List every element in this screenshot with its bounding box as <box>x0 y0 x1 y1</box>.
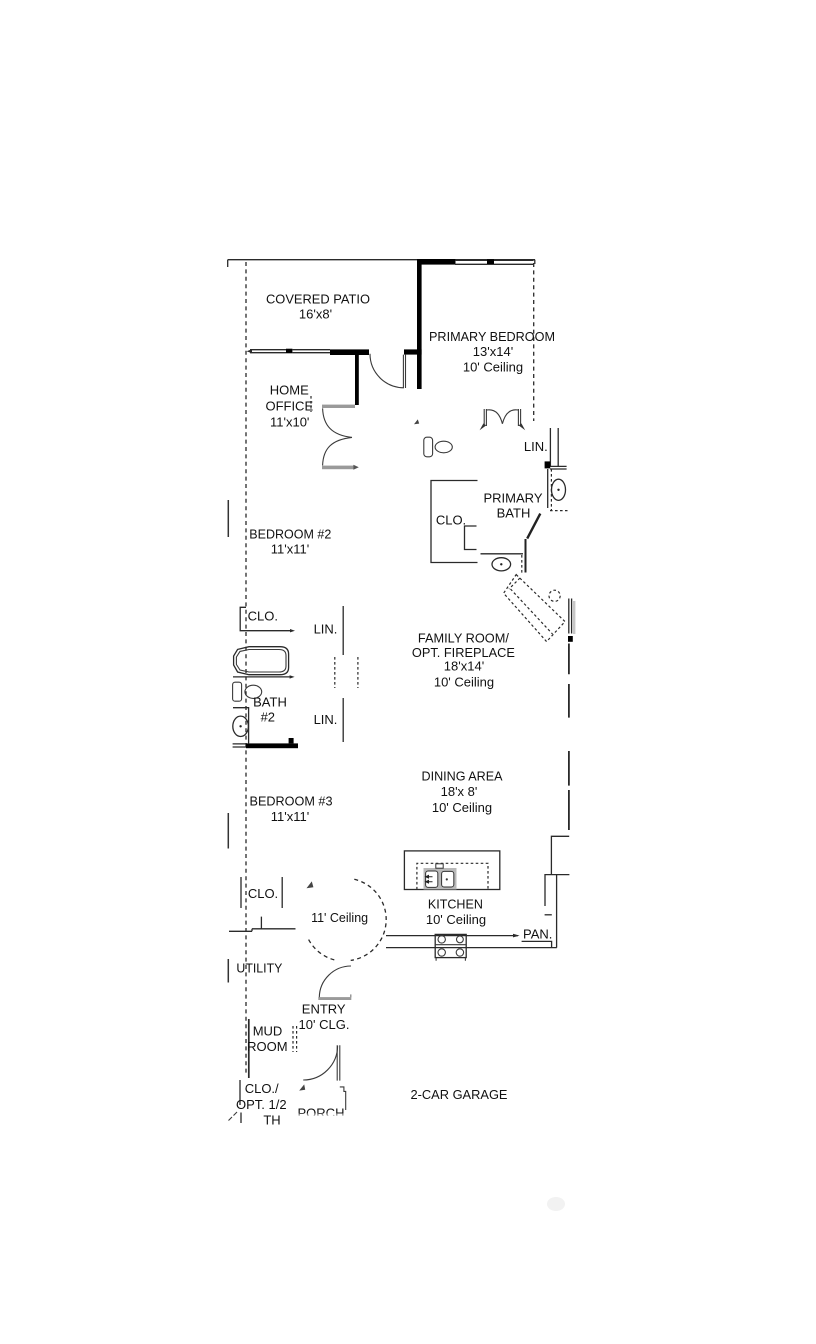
svg-text:LIN.: LIN. <box>314 712 338 727</box>
svg-text:ENTRY: ENTRY <box>302 1002 346 1017</box>
svg-text:10' Ceiling: 10' Ceiling <box>434 674 494 689</box>
svg-text:10' Ceiling: 10' Ceiling <box>426 912 486 927</box>
svg-text:11'x10': 11'x10' <box>270 415 309 430</box>
svg-text:10' CLG.: 10' CLG. <box>299 1017 350 1032</box>
svg-text:OPT. 1/2: OPT. 1/2 <box>236 1097 287 1112</box>
svg-text:LIN.: LIN. <box>524 439 548 454</box>
svg-text:11' Ceiling: 11' Ceiling <box>311 910 368 925</box>
svg-text:KITCHEN: KITCHEN <box>428 897 483 912</box>
svg-text:COVERED PATIO: COVERED PATIO <box>266 292 370 307</box>
svg-text:BATH: BATH <box>253 695 287 710</box>
svg-text:#2: #2 <box>261 710 275 725</box>
svg-text:TH: TH <box>263 1113 280 1128</box>
svg-text:11'x11': 11'x11' <box>271 542 309 557</box>
svg-text:16'x8': 16'x8' <box>299 307 332 322</box>
svg-text:DINING AREA: DINING AREA <box>422 769 503 784</box>
svg-text:PRIMARY: PRIMARY <box>484 491 543 506</box>
svg-text:PRIMARY BEDROOM: PRIMARY BEDROOM <box>429 329 555 344</box>
svg-text:18'x14': 18'x14' <box>444 659 484 674</box>
svg-text:2-CAR GARAGE: 2-CAR GARAGE <box>411 1087 508 1102</box>
svg-text:ROOM: ROOM <box>247 1039 287 1054</box>
svg-text:BEDROOM #2: BEDROOM #2 <box>249 527 331 542</box>
svg-text:CLO.: CLO. <box>248 886 278 901</box>
svg-text:BEDROOM #3: BEDROOM #3 <box>250 794 333 809</box>
svg-text:UTILITY: UTILITY <box>236 961 282 976</box>
svg-text:CLO./: CLO./ <box>245 1081 279 1096</box>
svg-text:LIN.: LIN. <box>314 622 338 637</box>
svg-text:10' Ceiling: 10' Ceiling <box>463 360 523 375</box>
svg-text:OFFICE: OFFICE <box>265 399 313 414</box>
svg-text:18'x 8': 18'x 8' <box>441 784 478 799</box>
svg-text:CLO.: CLO. <box>436 513 466 528</box>
svg-text:10' Ceiling: 10' Ceiling <box>432 800 492 815</box>
svg-text:PAN.: PAN. <box>523 927 552 942</box>
svg-text:CLO.: CLO. <box>248 609 278 624</box>
svg-text:11'x11': 11'x11' <box>271 809 309 824</box>
svg-text:BATH: BATH <box>497 506 531 521</box>
svg-text:13'x14': 13'x14' <box>473 344 513 359</box>
svg-text:FAMILY ROOM/: FAMILY ROOM/ <box>418 631 509 646</box>
svg-text:MUD: MUD <box>253 1024 283 1039</box>
svg-text:HOME: HOME <box>270 383 309 398</box>
